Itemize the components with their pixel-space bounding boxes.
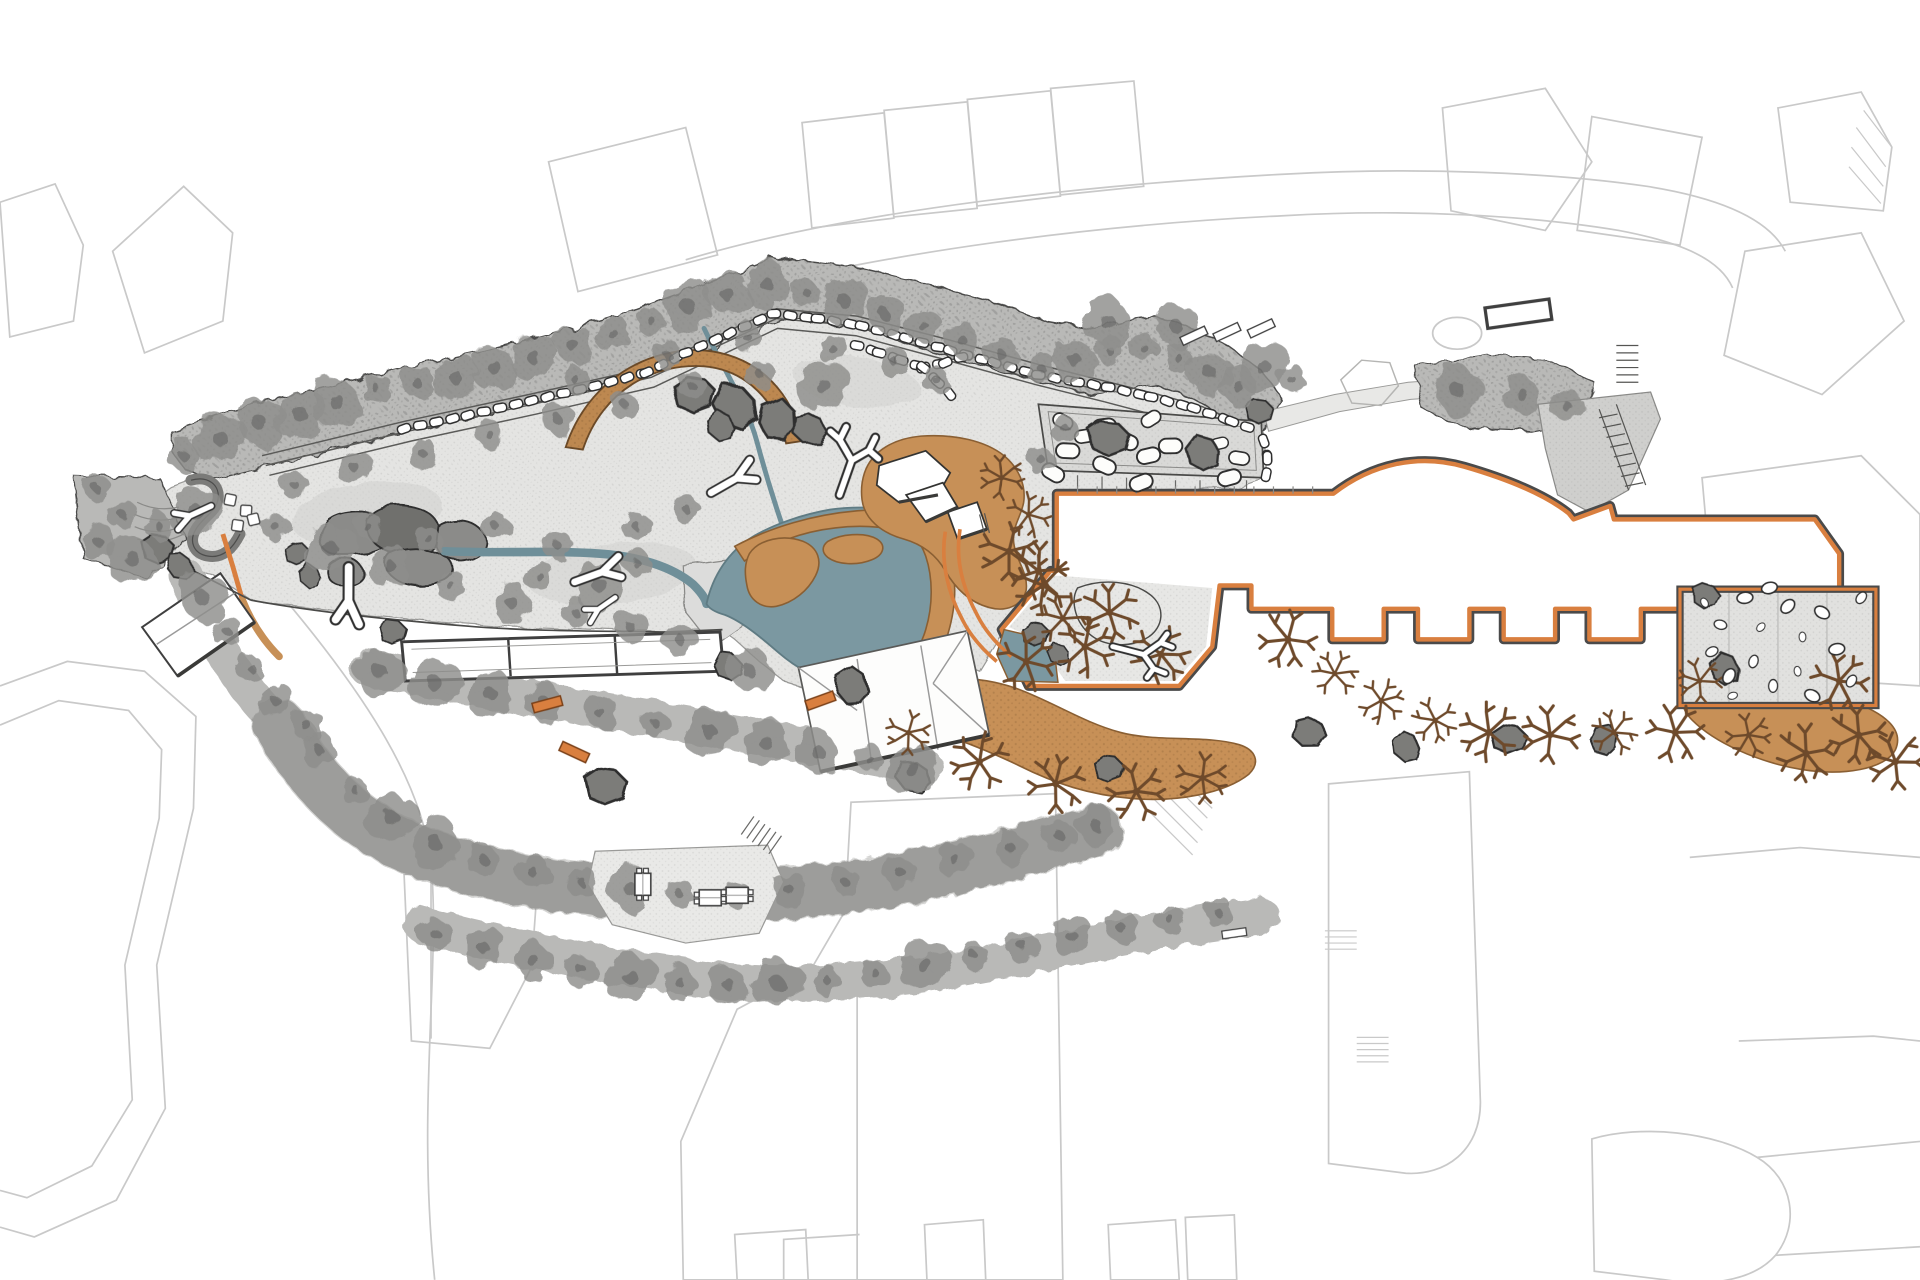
- site-plan-canvas: [0, 0, 1920, 1280]
- context-parcel: [113, 186, 233, 353]
- context-boundary: [0, 661, 196, 1237]
- context-parcel: [802, 81, 1144, 228]
- vertical-stairs: [1616, 346, 1638, 383]
- context-parcel: [0, 184, 83, 337]
- context-hatch: [1325, 931, 1357, 949]
- white-square: [224, 493, 237, 506]
- context-blob: [1433, 317, 1482, 349]
- picnic-table: [635, 868, 651, 900]
- context-parcel: [1724, 233, 1904, 395]
- rock: [1287, 713, 1330, 753]
- wall-stone: [493, 402, 508, 413]
- tree-brown: [1304, 643, 1366, 705]
- wall-stone: [850, 340, 865, 351]
- rock: [379, 620, 407, 644]
- bench-white: [1213, 322, 1241, 341]
- wall-stone: [1144, 392, 1159, 403]
- context-boundary: [0, 701, 162, 1198]
- wall-stone: [1101, 382, 1115, 392]
- wall-stone: [783, 310, 798, 321]
- rock: [1094, 756, 1124, 781]
- pebble: [1799, 632, 1806, 642]
- tree-brown: [1350, 671, 1412, 733]
- wall-stone: [1263, 451, 1272, 465]
- wall-stone: [413, 420, 427, 430]
- pebble: [1768, 679, 1777, 692]
- white-square: [231, 519, 243, 531]
- context-line: [784, 970, 860, 1280]
- context-boundary: [288, 603, 435, 1280]
- context-parcel: [1592, 1131, 1790, 1280]
- bench-white: [1485, 299, 1552, 328]
- wall-stone: [767, 309, 781, 318]
- tree-brown: [1584, 702, 1646, 764]
- bench-orange: [559, 741, 590, 762]
- wall-stone: [556, 388, 570, 398]
- boulder: [1056, 443, 1080, 459]
- island: [823, 535, 883, 564]
- wall-stone: [477, 407, 491, 417]
- context-line: [1690, 848, 1920, 1256]
- site-plan-page: [0, 0, 1920, 1280]
- context-parcel: [1329, 772, 1481, 1174]
- context-parcel: [735, 1220, 986, 1280]
- context-parcel: [1442, 88, 1591, 230]
- context-parcel: [1108, 1215, 1237, 1280]
- bench-white: [1247, 319, 1275, 338]
- context-parcel: [549, 128, 718, 292]
- rock: [585, 769, 627, 804]
- wall-stone: [811, 314, 825, 324]
- boulder: [1159, 438, 1183, 453]
- context-hatch: [1357, 1037, 1389, 1061]
- rock: [1089, 422, 1129, 455]
- rock: [1388, 728, 1425, 767]
- tree-brown: [1255, 606, 1320, 671]
- tree-brown: [1519, 703, 1582, 766]
- picnic-table: [721, 887, 753, 903]
- white-square: [247, 513, 260, 526]
- context-road: [686, 171, 1786, 260]
